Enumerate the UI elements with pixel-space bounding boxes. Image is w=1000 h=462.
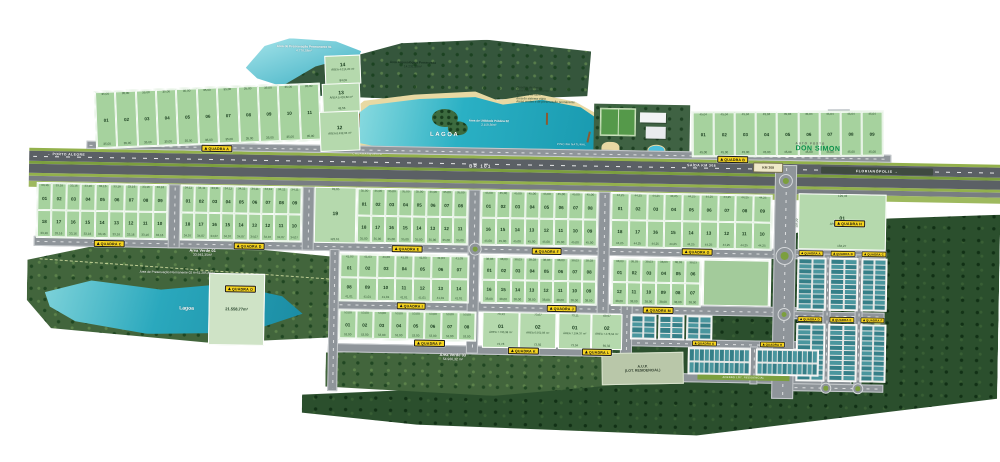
lot-F-12: 1245,00 xyxy=(539,219,554,246)
lot-row: 33,160133,160233,160333,160433,160533,16… xyxy=(37,183,167,212)
lot-F-09: 0945,00 xyxy=(582,219,597,246)
quadra-sign-G: QUADRA G xyxy=(682,248,713,256)
lot-F-05: 45,0005 xyxy=(539,192,554,219)
quadra-sign-I: QUADRA I xyxy=(397,302,426,310)
condo-unit xyxy=(799,299,811,303)
lot-E-16: 1635,00 xyxy=(384,216,398,243)
lot-D-03: 34,1103 xyxy=(208,186,222,213)
quadra-sign-B: QUADRA B xyxy=(717,156,748,164)
lot-I-07: 41,0307 xyxy=(450,256,469,279)
lot-F-06: 45,0006 xyxy=(554,192,569,219)
condo-unit xyxy=(874,357,884,361)
lot-G-18: 1844,25 xyxy=(611,220,629,247)
condo-unit xyxy=(783,363,787,374)
condo-unit xyxy=(644,322,654,327)
marker-icon xyxy=(864,253,866,255)
marker-icon xyxy=(535,250,538,253)
condo-unit xyxy=(830,356,842,360)
quadra-sign-F: QUADRA F xyxy=(860,317,884,323)
lot-M-07: 0738,00 xyxy=(685,283,700,306)
lot-J-02: 38,0302 xyxy=(496,257,511,280)
condo-unit xyxy=(710,350,714,361)
condo-unit xyxy=(845,265,857,269)
quadra-block-A: 35,000135,0035,000235,0035,000335,0035,0… xyxy=(94,83,322,150)
condo-unit xyxy=(845,260,857,264)
condo-unit xyxy=(644,317,654,322)
lot-J-05: 38,0305 xyxy=(539,258,554,281)
lot-C-03: 33,1603 xyxy=(66,183,81,210)
lot-F-08: 45,0008 xyxy=(583,192,598,219)
lot-J-03: 38,0303 xyxy=(511,257,526,280)
lot-M-09: 0938,00 xyxy=(656,283,671,306)
quadra-sign-O: QUADRA O xyxy=(225,285,256,293)
lot-G-14: 1444,25 xyxy=(682,221,700,248)
lot-C-12: 1233,16 xyxy=(123,211,138,238)
condo-unit xyxy=(831,270,843,274)
condo-unit xyxy=(705,350,709,361)
condo-unit xyxy=(799,294,811,298)
condo-unit xyxy=(768,363,772,374)
quadra-sign-B: QUADRA B xyxy=(831,251,856,257)
condo-unit xyxy=(725,350,729,361)
lot-C-14: 1433,16 xyxy=(95,211,110,238)
lot-row: 1238,001138,001038,000938,000838,000738,… xyxy=(612,282,700,307)
club-building xyxy=(646,127,666,139)
condo-unit xyxy=(843,361,855,365)
condo-unit xyxy=(813,284,825,288)
condo-unit xyxy=(831,290,843,294)
condo-unit xyxy=(843,366,855,370)
lot-J-06: 38,0306 xyxy=(553,258,568,281)
lot-I-05: 41,0305 xyxy=(413,255,432,278)
condo-unit xyxy=(798,325,810,329)
condo-unit xyxy=(783,351,787,362)
quadra-sign-E: QUADRA E xyxy=(392,245,423,253)
condo-unit xyxy=(788,351,792,362)
condo-unit xyxy=(700,350,704,361)
lot-D-18: 1834,07 xyxy=(181,212,195,239)
condo-unit xyxy=(813,259,825,263)
lagoon-label: LAGOA xyxy=(410,131,480,138)
condo-unit xyxy=(862,326,872,330)
condo-unit xyxy=(690,349,694,360)
lot-E-11: 1135,00 xyxy=(453,217,467,244)
lot-row: 1835,001735,001635,001535,001435,001335,… xyxy=(357,216,467,245)
lot-A-11: 35,001135,00 xyxy=(298,84,320,141)
lot-E-06: 35,0006 xyxy=(426,190,440,217)
marker-icon xyxy=(550,307,553,310)
lot-P-08: 53,000853,00 xyxy=(458,312,475,340)
marker-icon xyxy=(720,158,723,161)
access-road-label: ACESSO LOT. RESIDENCIAL xyxy=(722,376,764,380)
condo-unit xyxy=(798,330,810,334)
big-lot-02: 73,6702ÁREA 6.562,06 m²73,92 xyxy=(519,312,557,349)
lot-row: 1834,071734,071634,071534,071434,071334,… xyxy=(181,212,301,241)
lot-F-14: 1445,00 xyxy=(510,218,525,245)
lot-F-11: 1145,00 xyxy=(553,219,568,246)
condo-unit xyxy=(672,328,682,333)
lot-J-16: 1638,00 xyxy=(482,280,497,303)
condo-unit xyxy=(844,331,856,335)
lot-E-02: 35,0002 xyxy=(371,189,385,216)
lot-J-07: 38,0307 xyxy=(568,258,583,281)
marker-icon xyxy=(417,342,420,345)
areas-legend: Quadro de áreasÁrea total do loteamentoÁ… xyxy=(516,85,650,107)
condo-unit xyxy=(688,323,698,328)
aup-residential-lot: A.U.P. (LOT. RESIDENCIAL) xyxy=(601,352,684,385)
condo-unit xyxy=(844,336,856,340)
lot-E-12: 1235,00 xyxy=(439,217,453,244)
quadra-block-P: 53,000153,0053,000253,0053,000353,0053,0… xyxy=(338,309,477,341)
lot-row: 38,030138,030238,030338,030438,030538,03… xyxy=(612,259,700,284)
lot-A-07: 35,000735,00 xyxy=(217,87,239,144)
exit-label: SAÍDA KM 308 xyxy=(687,163,716,168)
lot-F-07: 45,0007 xyxy=(568,192,583,219)
lot-G-05: 44,2505 xyxy=(682,194,700,221)
condo-unit xyxy=(695,349,699,360)
condo-unit xyxy=(831,305,843,309)
lot-D-13: 1334,07 xyxy=(247,214,261,241)
condo-unit xyxy=(843,351,855,355)
marker-icon xyxy=(801,252,803,254)
marker-icon xyxy=(833,252,835,254)
lot-F-16: 1645,00 xyxy=(481,218,496,245)
condo-unit xyxy=(672,323,682,328)
marker-icon xyxy=(837,222,840,225)
condo-unit xyxy=(875,281,885,285)
lot-A-06: 35,000635,00 xyxy=(197,88,219,145)
lot-I-06: 41,0306 xyxy=(432,256,451,279)
marker-icon xyxy=(585,351,588,354)
gas-station-logo: AUTO POSTO DON SIMON xyxy=(795,141,871,160)
lot-E-03: 35,0003 xyxy=(385,189,399,216)
condo-unit xyxy=(799,259,811,263)
lot-I-13: 1341,01 xyxy=(431,279,450,302)
condo-unit xyxy=(730,350,734,361)
condo-unit xyxy=(830,371,842,375)
lot-row: 1638,001538,001438,001338,001238,001138,… xyxy=(482,280,596,305)
quadra-sign-E: QUADRA E xyxy=(829,317,854,323)
condo-unit xyxy=(632,316,642,321)
condo-unit xyxy=(773,363,777,374)
lot-G-17: 1744,25 xyxy=(628,220,646,247)
big-lot-01: 73,1301ÁREA 7.790,38 m²73,78 xyxy=(482,312,520,349)
condo-unit xyxy=(788,364,792,375)
quadra-sign-L: QUADRA L xyxy=(582,348,613,356)
quadra-sign-A: QUADRA A xyxy=(799,250,824,256)
lot-E-18: 1835,00 xyxy=(357,216,371,243)
condo-block xyxy=(755,348,818,376)
condo-unit xyxy=(813,274,825,278)
condo-unit xyxy=(700,334,710,339)
condo-block xyxy=(688,347,751,375)
condo-unit xyxy=(874,337,884,341)
marker-icon xyxy=(395,247,398,250)
lot-A-10: 35,001035,00 xyxy=(278,84,300,141)
lot-A-05: 35,000535,00 xyxy=(176,88,198,145)
condo-unit xyxy=(863,305,873,309)
condo-unit xyxy=(812,299,824,303)
lot-row: 38,030138,030238,030338,030438,030538,03… xyxy=(482,257,596,282)
condo-unit xyxy=(632,322,642,327)
masterplan-canvas: AUTO POSTO DON SIMON A.U.P. (LOT. RESIDE… xyxy=(0,0,1000,462)
lot-F-03: 45,0003 xyxy=(510,191,525,218)
condo-unit xyxy=(844,326,856,330)
lot-B-03: 45,040345,00 xyxy=(735,112,756,156)
big-lot-02: 69,9702ÁREA 7.278,64 m²69,32 xyxy=(591,314,623,351)
condo-block xyxy=(827,324,857,382)
green-lot-patch xyxy=(703,260,770,307)
quadra-block-M: 38,030138,030238,030338,030438,030538,03… xyxy=(611,258,702,308)
lot-P-06: 53,000653,00 xyxy=(424,312,441,340)
condo-unit xyxy=(725,362,729,373)
condo-unit xyxy=(799,304,811,308)
marker-icon xyxy=(762,343,764,345)
lot-J-10: 1038,00 xyxy=(567,281,582,304)
lot-J-12: 1238,00 xyxy=(539,281,554,304)
condo-unit xyxy=(720,362,724,373)
condo-unit xyxy=(812,330,824,334)
condo-unit xyxy=(715,350,719,361)
lot-J-09: 0938,00 xyxy=(581,281,596,304)
lot-E-13: 1335,00 xyxy=(425,217,439,244)
condo-unit xyxy=(730,363,734,374)
lot-D-10: 1034,07 xyxy=(287,214,301,241)
condo-unit xyxy=(863,295,873,299)
lot-D-01: 34,1101 xyxy=(181,185,195,212)
condo-unit xyxy=(644,328,654,333)
lot-I-03: 41,0303 xyxy=(377,255,396,278)
lot-I-04: 41,0304 xyxy=(395,255,414,278)
lot-row: 44,250144,250244,250344,250444,250544,25… xyxy=(611,193,771,223)
condo-unit xyxy=(812,289,824,293)
lot-G-04: 44,2504 xyxy=(665,194,683,221)
condo-unit xyxy=(740,363,744,374)
condo-unit xyxy=(812,294,824,298)
condo-unit xyxy=(793,351,797,362)
lot-row: 34,110134,110234,110334,110434,110534,11… xyxy=(181,185,301,214)
marker-icon xyxy=(800,318,802,320)
condo-unit xyxy=(830,366,842,370)
highway-name: BR 101 xyxy=(469,163,492,168)
condo-unit xyxy=(758,351,762,362)
condo-unit xyxy=(799,264,811,268)
condo-unit xyxy=(813,264,825,268)
condo-unit xyxy=(660,317,670,322)
condo-unit xyxy=(745,363,749,374)
condo-unit xyxy=(700,329,710,334)
lot-J-04: 38,0304 xyxy=(525,257,540,280)
condo-unit xyxy=(690,362,694,373)
condo-unit xyxy=(863,290,873,294)
lot-P-01: 53,000153,00 xyxy=(339,310,356,338)
quadra-sign-F: QUADRA F xyxy=(532,248,563,256)
lot-I-08: 0841,01 xyxy=(340,277,359,300)
lot-D-17: 1734,07 xyxy=(194,213,208,240)
lot-row: 45,000145,000245,000345,000445,000545,00… xyxy=(481,191,597,220)
condo-unit xyxy=(862,366,872,370)
condo-unit xyxy=(862,331,872,335)
condo-unit xyxy=(863,280,873,284)
lot-B-04: 45,040445,00 xyxy=(756,112,777,156)
lot-row: 1833,161733,161633,161533,161433,161333,… xyxy=(37,210,167,239)
lot-F-02: 45,0002 xyxy=(496,191,511,218)
condo-unit xyxy=(799,279,811,283)
condo-unit xyxy=(778,351,782,362)
lot-C-17: 1733,16 xyxy=(51,210,66,237)
condo-unit xyxy=(798,364,802,375)
gas-station-label-brand: DON SIMON xyxy=(795,145,871,153)
quadra-sign-D: QUADRA D xyxy=(797,316,822,322)
big-lot-19: 99,8519123,61 xyxy=(314,187,357,244)
quadra-block-D: 34,110134,110234,110334,110434,110534,11… xyxy=(180,184,303,242)
condo-unit xyxy=(660,333,670,338)
big-lot-01: 73,1101ÁREA 7.194,37 m²73,04 xyxy=(558,313,592,350)
lot-P-05: 53,000553,00 xyxy=(407,311,424,339)
condo-unit xyxy=(874,332,884,336)
condo-unit xyxy=(862,336,872,340)
lot-A-08: 35,000835,00 xyxy=(237,86,259,143)
lot-A-01: 35,000135,00 xyxy=(95,91,117,148)
condo-unit xyxy=(874,342,884,346)
condo-unit xyxy=(688,328,698,333)
condo-unit xyxy=(845,270,857,274)
condo-unit xyxy=(700,318,710,323)
lot-A-02: 35,000235,00 xyxy=(115,91,137,148)
lot-G-09: 44,2509 xyxy=(753,195,771,222)
marker-icon xyxy=(237,244,240,247)
condo-unit xyxy=(875,261,885,265)
lot-row: 1645,001545,001445,001345,001245,001145,… xyxy=(481,218,597,247)
lot-D-14: 1434,07 xyxy=(234,213,248,240)
condo-unit xyxy=(660,328,670,333)
condo-block xyxy=(630,314,656,339)
lot-M-05: 38,0305 xyxy=(671,260,686,283)
lot-I-11: 1141,01 xyxy=(395,278,414,301)
condo-unit xyxy=(798,351,802,362)
lot-E-07: 35,0007 xyxy=(440,190,454,217)
street xyxy=(168,184,181,248)
lot-M-03: 38,0303 xyxy=(641,259,656,282)
lot-M-06: 38,0306 xyxy=(685,260,700,283)
condo-unit xyxy=(672,334,682,339)
lot-E-01: 35,0001 xyxy=(357,189,371,216)
condo-unit xyxy=(831,285,843,289)
lot-C-15: 1533,16 xyxy=(80,211,95,238)
quadra-sign-C: QUADRA C xyxy=(94,240,125,248)
lot-P-03: 53,000353,00 xyxy=(373,311,390,339)
lot-C-01: 33,1601 xyxy=(37,183,52,210)
condo-unit xyxy=(831,260,843,264)
marker-icon xyxy=(204,147,207,150)
lot-A-04: 35,000435,00 xyxy=(156,89,178,146)
condo-unit xyxy=(830,326,842,330)
condo-unit xyxy=(793,364,797,375)
condo-unit xyxy=(831,265,843,269)
quadra-sign-C: QUADRA C xyxy=(862,251,887,257)
condo-unit xyxy=(862,371,872,375)
lot-D-12: 1234,07 xyxy=(261,214,275,241)
lot-B-02: 45,040245,00 xyxy=(714,112,735,156)
lot-G-03: 44,2503 xyxy=(647,194,665,221)
lot-P-02: 53,000253,00 xyxy=(356,311,373,339)
km-308-sign: KM 308 xyxy=(753,162,783,173)
condo-unit xyxy=(843,356,855,360)
quadra-sign-G: QUADRA G xyxy=(692,340,717,346)
lot-C-04: 33,1604 xyxy=(81,184,96,211)
condo-unit xyxy=(672,317,682,322)
condo-unit xyxy=(700,362,704,373)
lot-C-02: 33,1602 xyxy=(52,183,67,210)
condo-unit xyxy=(745,350,749,361)
condo-block xyxy=(686,315,712,340)
quadra-block-F: 45,000145,000245,000345,000445,000545,00… xyxy=(480,190,599,248)
lot-I-01: 41,0301 xyxy=(340,254,359,277)
lot-B-01: 45,040145,00 xyxy=(693,112,714,156)
lot-D-09: 34,1109 xyxy=(288,187,302,214)
lot-G-13: 1344,25 xyxy=(700,221,718,248)
lot-P-07: 53,000753,00 xyxy=(441,312,458,340)
condo-unit xyxy=(875,301,885,305)
lot-I-09: 0941,01 xyxy=(358,278,377,301)
lot-M-02: 38,0302 xyxy=(627,259,642,282)
condo-unit xyxy=(688,334,698,339)
condo-unit xyxy=(688,317,698,322)
condo-unit xyxy=(830,361,842,365)
marker-icon xyxy=(646,309,649,312)
condo-unit xyxy=(799,289,811,293)
condo-unit xyxy=(875,271,885,275)
lot-I-10: 1041,01 xyxy=(376,278,395,301)
lot-G-10: 1044,25 xyxy=(753,222,771,249)
lot-E-05: 35,0005 xyxy=(412,189,426,216)
lot-D-15: 1534,07 xyxy=(221,213,235,240)
lot-C-13: 1333,16 xyxy=(109,211,124,238)
lot-C-06: 33,1606 xyxy=(109,184,124,211)
lot-D-08: 34,1108 xyxy=(275,187,289,214)
condo-unit xyxy=(710,362,714,373)
lot-C-11: 1133,16 xyxy=(138,212,153,239)
lot-E-14: 1435,00 xyxy=(412,216,426,243)
condo-unit xyxy=(863,285,873,289)
condo-unit xyxy=(813,364,817,375)
quadra-sign-A: QUADRA A xyxy=(201,145,232,153)
condo-unit xyxy=(863,300,873,304)
lot-D-05: 34,1105 xyxy=(235,186,249,213)
condo-unit xyxy=(695,362,699,373)
marker-icon xyxy=(863,319,865,321)
lot-D-16: 1634,07 xyxy=(207,213,221,240)
condo-unit xyxy=(700,323,710,328)
condo-unit xyxy=(874,367,884,371)
condo-unit xyxy=(862,351,872,355)
lot-F-04: 45,0004 xyxy=(525,191,540,218)
lot-D-11: 1134,07 xyxy=(274,214,288,241)
lot-J-08: 38,0308 xyxy=(582,258,597,281)
marker-icon xyxy=(228,287,231,290)
condo-unit xyxy=(799,284,811,288)
condo-unit xyxy=(705,362,709,373)
lot-G-12: 1244,25 xyxy=(717,222,735,249)
lot-C-09: 33,1609 xyxy=(153,185,168,212)
condo-unit xyxy=(830,346,842,350)
lot-C-16: 1633,16 xyxy=(66,210,81,237)
lot-G-02: 44,2502 xyxy=(629,193,647,220)
condo-block xyxy=(861,258,888,311)
lot-M-12: 1238,00 xyxy=(612,282,627,305)
quadra-sign-K: QUADRA K xyxy=(508,347,539,355)
lot-D-04: 34,1104 xyxy=(221,186,235,213)
